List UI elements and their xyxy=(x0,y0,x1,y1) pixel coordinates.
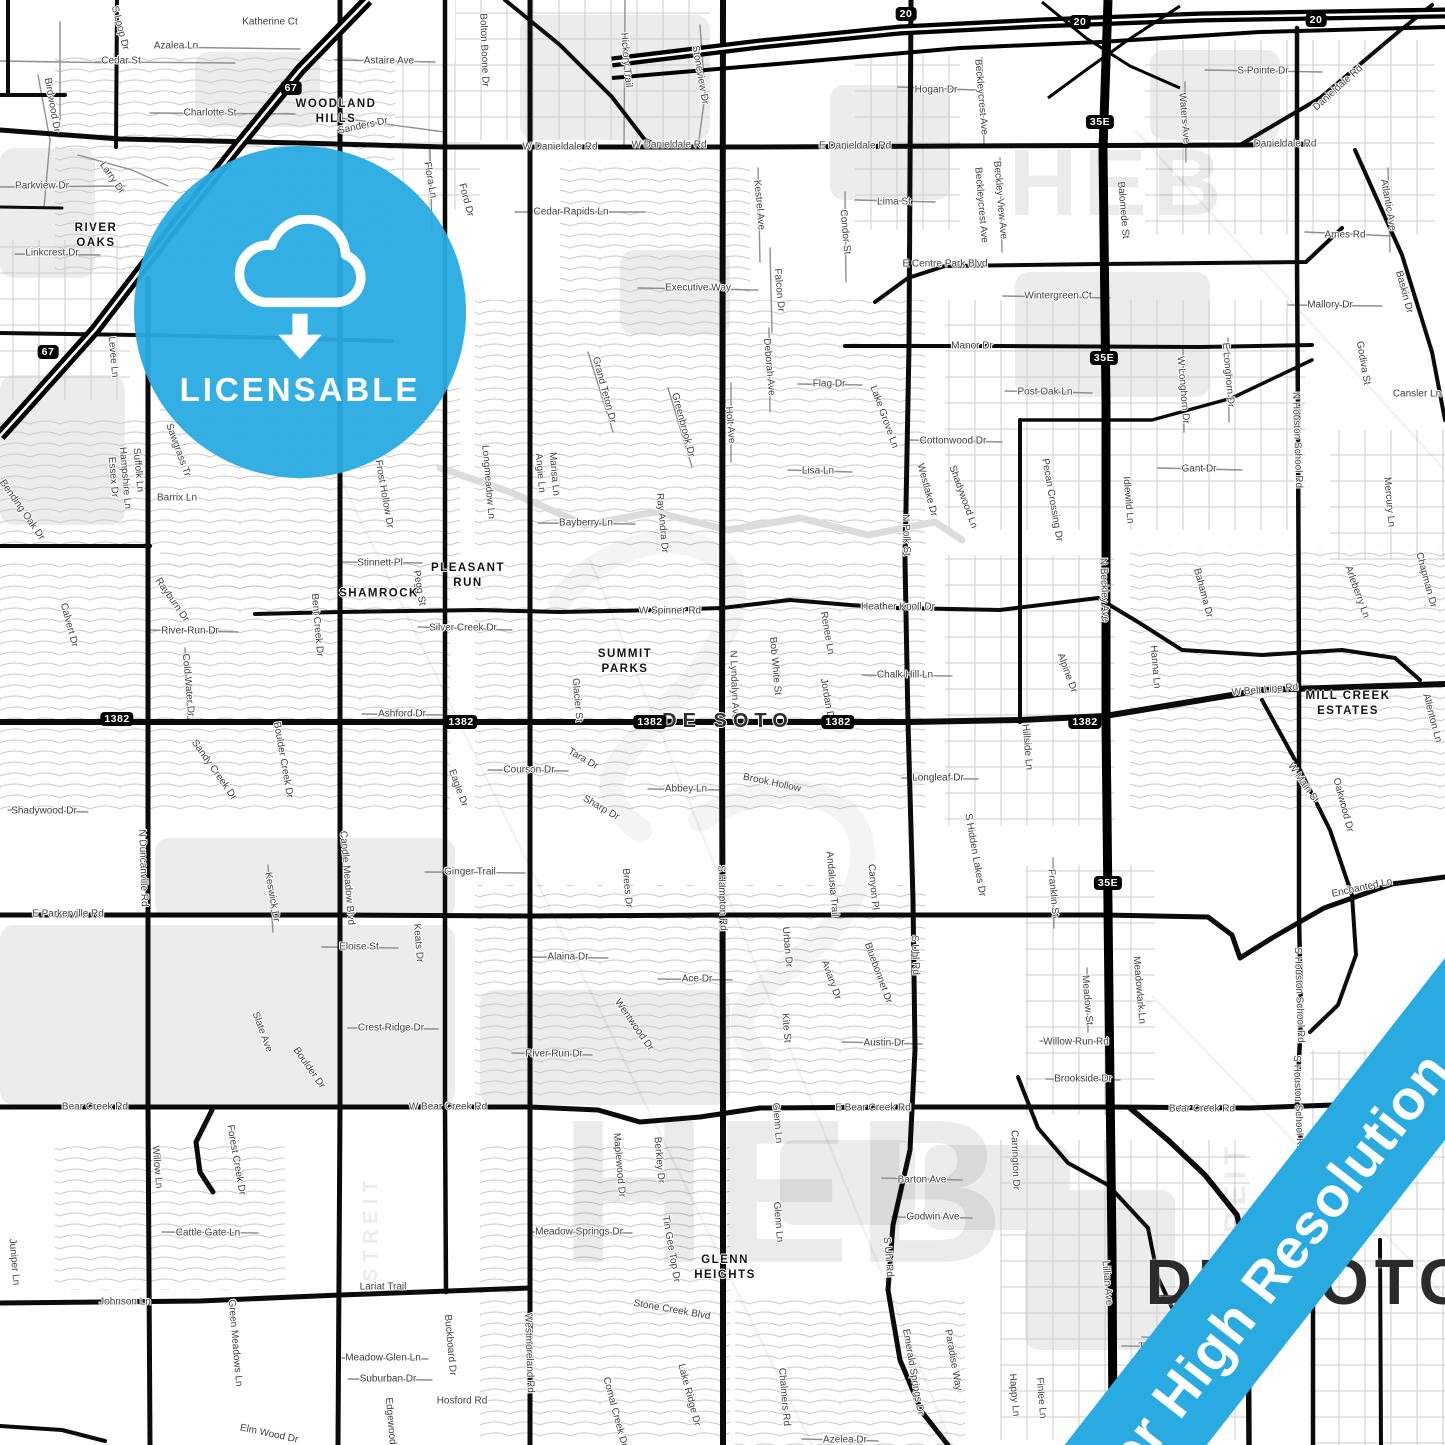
street-label: Angie Ln xyxy=(533,453,547,493)
street-label: Cattle Gate Ln xyxy=(176,1228,240,1239)
street-label: Keswick Dr xyxy=(262,871,282,922)
street-label: Hillside Ln xyxy=(1020,724,1035,771)
street-label: Allenton Ln xyxy=(1420,692,1444,743)
street-label: Shadywood Ln xyxy=(947,464,980,530)
street-label: Cottonwood Dr xyxy=(920,436,987,447)
street-label: Manor Dr xyxy=(951,341,993,352)
street-label: Lake Ridge Dr xyxy=(675,1363,702,1428)
street-label: Comal Creek Dr xyxy=(600,1376,629,1445)
street-label: Mallory Dr xyxy=(1307,300,1353,311)
city-label-desoto: DE SOTO xyxy=(662,708,794,734)
street-label: Greenbrook Dr xyxy=(669,392,697,459)
street-label: Edgewood Ln xyxy=(383,1397,399,1445)
street-label: Longleaf Dr xyxy=(912,773,964,784)
street-label: Franklin St xyxy=(1045,869,1060,918)
street-label: Birdwood Dr xyxy=(42,77,62,133)
street-label: E Danieldale Rd xyxy=(819,141,891,152)
street-label: Hosford Rd xyxy=(437,1396,488,1407)
street-label: Rayburn Dr xyxy=(153,576,191,624)
street-label: Barton Ave xyxy=(898,1175,947,1186)
city-label: GLENN HEIGHTS xyxy=(694,1253,756,1283)
street-label: Hickory Trail xyxy=(618,32,634,88)
street-label: Sandy Creek Dr xyxy=(189,738,239,803)
street-label: Ace Dr xyxy=(682,974,713,985)
street-label: Keats Dr xyxy=(411,923,425,963)
street-label: Cold Water Dr xyxy=(180,653,196,717)
street-label: Ashford Dr xyxy=(378,709,426,720)
street-label: Maplewood Dr xyxy=(611,1132,628,1197)
street-label: Holt Ave xyxy=(723,406,737,444)
street-label: Bear Creek Rd xyxy=(62,1102,128,1113)
street-label: Katherine Ct xyxy=(242,17,298,28)
street-label: Carrington Dr xyxy=(1008,1130,1021,1190)
street-label: Lillian Ave xyxy=(1100,1260,1115,1306)
street-label: Azelea Dr xyxy=(823,1435,867,1445)
street-label: Willow Run Rd xyxy=(1043,1037,1109,1048)
street-label: Chalk Hill Ln xyxy=(877,670,933,681)
street-label: Tin Gee Top Dr xyxy=(660,1215,683,1283)
street-label: Glenn Ln xyxy=(771,1201,785,1242)
highway-shield: 67 xyxy=(38,345,59,359)
street-label: Levee Ln xyxy=(106,336,121,378)
street-label: Oakwood Dr xyxy=(1330,777,1355,834)
street-label: Frost Hollow Dr xyxy=(373,459,396,529)
street-label: W Longhorn Dr xyxy=(1175,356,1192,425)
street-label: Flora Ln xyxy=(421,161,438,199)
street-label: Urban Dr xyxy=(780,926,794,967)
street-label: Baskin Dr xyxy=(1393,270,1415,315)
street-label: Heather Knoll Dr xyxy=(861,602,935,613)
street-label: Bending Oak Dr xyxy=(0,478,47,543)
street-label: Eloise St xyxy=(339,942,378,953)
street-label: Deborah Ave xyxy=(761,338,777,396)
street-label: S Loop Dr xyxy=(109,5,131,51)
street-label: Meadow Glen Ln xyxy=(345,1353,421,1364)
street-label: Falcon Dr xyxy=(772,268,787,312)
street-label: Calvert Dr xyxy=(58,602,80,648)
street-label: Meadowlark Ln xyxy=(1131,956,1148,1025)
street-label: E Parkerville Rd xyxy=(32,909,104,920)
street-label: Charlotte St xyxy=(184,108,237,119)
street-label: Grand Teton Dr xyxy=(590,356,618,425)
street-label: Bob White St xyxy=(767,636,783,695)
street-label: Larry Dr xyxy=(97,160,127,196)
street-label: Arleberry Ln xyxy=(1343,565,1372,620)
street-label: Cansler Ln xyxy=(1393,389,1441,400)
street-label: Barrix Ln xyxy=(157,493,197,504)
street-label: E Bear Creek Rd xyxy=(835,1103,911,1114)
street-label: River Run Dr xyxy=(525,1049,583,1060)
street-label: Enchanted Ln xyxy=(1331,876,1394,900)
street-label: Balomede St xyxy=(1115,181,1131,239)
street-label: Beckleycrest Ave xyxy=(972,59,990,136)
street-label: Atlantic Ave xyxy=(1378,178,1398,231)
street-label: Chalmers Rd xyxy=(776,1367,792,1426)
street-label: W Danieldale Rd xyxy=(522,142,597,153)
street-label: Chapman Dr xyxy=(1413,551,1438,609)
street-label: Elm Wood Dr xyxy=(239,1422,299,1445)
street-label: Westlake Dr xyxy=(915,462,940,517)
street-label: S Houston School Rd xyxy=(1292,947,1306,1043)
street-label: Beckleycrest Ave xyxy=(972,167,990,244)
street-label: W Belt Line Rd xyxy=(1231,682,1298,699)
city-label: PLEASANT RUN xyxy=(431,561,505,591)
street-label: Mercury Ln xyxy=(1381,477,1396,528)
street-label: Lima St xyxy=(877,197,911,208)
highway-shield: 1382 xyxy=(633,715,666,729)
street-label: Abbey Ln xyxy=(665,784,707,795)
street-label: Austin Dr xyxy=(863,1038,904,1049)
street-label: Kite St xyxy=(779,1013,793,1043)
street-label: Alaina Dr xyxy=(547,952,588,963)
street-label: S Hampton Rd xyxy=(715,865,728,931)
street-label: Hanna Ln xyxy=(1148,645,1163,689)
street-label: Boulder Dr xyxy=(291,1045,327,1090)
street-label: Suburban Dr xyxy=(360,1374,417,1385)
street-label: Wintergreen Ct xyxy=(1024,291,1091,302)
street-label: Silver Creek Dr xyxy=(429,623,497,634)
street-label: Slate Ave xyxy=(250,1010,275,1053)
street-label: Paradise Way xyxy=(942,1329,964,1392)
street-label: Flag Dr xyxy=(813,379,846,390)
licensable-badge: LICENSABLE xyxy=(134,146,466,478)
street-label: E Centre Park Blvd xyxy=(902,259,987,270)
street-label: N Beckley Ave xyxy=(1097,558,1110,623)
street-label: W Spinner Rd xyxy=(639,606,701,617)
street-label: S Uhl Rd xyxy=(881,1237,895,1278)
street-label: Ginger Trail xyxy=(444,867,496,878)
map-image: HEBHEBSTREITSTREIT S Loop DrKatherine Ct… xyxy=(0,0,1445,1445)
street-label: Brookside Dr xyxy=(1054,1074,1112,1085)
street-label: W Danieldale Rd xyxy=(631,140,706,151)
street-label: Hogan Dr xyxy=(915,85,958,96)
street-label: Canyon Pl xyxy=(866,864,881,911)
street-label: Waters Ave xyxy=(1176,92,1191,143)
street-label: Astaire Ave xyxy=(364,56,414,67)
city-label: SUMMIT PARKS xyxy=(598,647,652,677)
city-label: RIVER OAKS xyxy=(75,221,118,251)
street-label: Danieldale Rd xyxy=(1254,139,1317,150)
street-label: Willow Ln xyxy=(150,1145,165,1189)
street-label: Juniper Ln xyxy=(6,1238,21,1285)
street-label: N Duncanville Rd xyxy=(136,829,150,907)
street-label: Renee Ln xyxy=(818,611,836,656)
street-label: Gant Dr xyxy=(1181,464,1216,475)
street-label: Parkview Dr xyxy=(15,181,69,192)
street-label: Linkcrest Dr xyxy=(25,248,78,259)
street-label: Brees Dr xyxy=(620,868,634,908)
street-label: Forest Creek Dr xyxy=(224,1124,247,1196)
street-label: Finlee Ln xyxy=(1034,1377,1049,1419)
street-label: Stone Creek Blvd xyxy=(633,1298,712,1322)
street-label: Ames Rd xyxy=(1324,230,1365,241)
street-label: Lisa Ln xyxy=(802,466,834,477)
street-label: River Run Dr xyxy=(161,626,219,637)
street-label: W Main St xyxy=(1285,761,1320,805)
street-label: Berkley Dr xyxy=(651,1136,666,1183)
street-label: Lariat Trail xyxy=(360,1282,407,1293)
street-label: Longmeadow Ln xyxy=(479,445,496,520)
highway-shield: 1382 xyxy=(821,715,854,729)
city-label: MILL CREEK ESTATES xyxy=(1305,689,1390,719)
highway-shield: 20 xyxy=(1070,15,1091,29)
street-label: S Pointe Dr xyxy=(1237,66,1288,77)
street-label: Aviary Dr xyxy=(819,959,843,1001)
highway-shield: 20 xyxy=(1306,13,1327,27)
street-label: Bahama Dr xyxy=(1191,567,1215,619)
highway-shield: 35E xyxy=(1094,876,1122,890)
highway-shield: 35E xyxy=(1086,115,1114,129)
street-label: Lake Grove Ln xyxy=(868,384,901,449)
street-label: Bolton Boone Dr xyxy=(477,13,491,87)
street-label: Brook Hollow xyxy=(742,771,802,794)
street-label: Bear Creek Rd xyxy=(1169,1104,1235,1115)
street-label: Post Oak Ln xyxy=(1017,387,1072,398)
street-label: W Bear Creek Rd xyxy=(409,1102,487,1113)
street-label: S Uhl Rd xyxy=(909,935,921,975)
street-label: Danieldale Rd xyxy=(1311,63,1365,113)
street-label: Cedar Rapids Ln xyxy=(533,207,608,218)
street-label: Ford Dr xyxy=(456,182,475,218)
highway-shield: 35E xyxy=(1090,351,1118,365)
highway-shield: 20 xyxy=(896,7,917,21)
street-label: Godwin Ave xyxy=(906,1212,959,1223)
street-label: Pecan Crossing Dr xyxy=(1039,458,1064,543)
street-label: Glenn Ln xyxy=(770,1102,784,1143)
street-label: Cedar St xyxy=(101,56,140,67)
street-label: Happy Ln xyxy=(1007,1373,1022,1417)
street-label: Marisa Ln xyxy=(547,452,562,497)
street-label: Condor St xyxy=(838,209,853,255)
street-label: N Polk St xyxy=(900,514,912,556)
street-label: Tara Dr xyxy=(566,746,600,772)
city-label: SHAMROCK xyxy=(339,587,419,602)
street-label: Executive Way xyxy=(665,283,731,294)
street-label: Meadow Springs Dr xyxy=(535,1227,623,1238)
street-label: Glacier St xyxy=(570,678,585,723)
street-label: Buckboard Dr xyxy=(442,1314,458,1376)
street-label: Andalusia Trail xyxy=(824,851,841,917)
street-label: Azalea Ln xyxy=(154,41,198,52)
street-label: S Hidden Lakes Dr xyxy=(962,813,987,898)
street-label: E Longhorn Dr xyxy=(1220,342,1237,408)
street-label: Beckley View Ave xyxy=(991,160,1009,239)
street-label: Idlewild Ln xyxy=(1120,476,1135,524)
street-label: Godiva St xyxy=(1354,340,1372,385)
street-label: Courson Dr xyxy=(503,765,554,776)
street-label: Bayberry Ln xyxy=(559,518,613,529)
street-label: Eagle Dr xyxy=(446,768,470,808)
street-label: Suffolk Ln xyxy=(131,447,146,492)
street-label: Johnson Ln xyxy=(99,1297,151,1308)
highway-shield: 1382 xyxy=(1068,715,1101,729)
highway-shield: 1382 xyxy=(100,712,133,726)
city-label: WOODLAND HILLS xyxy=(296,97,377,127)
street-label: Alpine Dr xyxy=(1055,652,1079,694)
street-label: Green Meadows Ln xyxy=(226,1299,245,1387)
street-label: N Houston School Rd xyxy=(1290,392,1304,488)
street-label: Meadow St xyxy=(1079,975,1094,1026)
street-label: Shadywood Dr xyxy=(11,806,77,817)
badge-label: LICENSABLE xyxy=(180,371,421,409)
street-label: Stinnett Pl xyxy=(357,558,403,569)
street-label: Ray Andra Dr xyxy=(654,493,670,554)
street-label: Bent Creek Dr xyxy=(309,593,325,657)
street-label: S Houston School Rd xyxy=(1291,1055,1305,1151)
street-label: Wentwood Dr xyxy=(612,997,656,1053)
street-label: Stoneview Dr xyxy=(689,45,710,105)
street-label: Candle Meadow Blvd xyxy=(337,830,356,925)
street-label: Boulder Creek Dr xyxy=(271,721,295,799)
street-label: Bluebonnet Dr xyxy=(862,941,894,1005)
cloud-download-icon xyxy=(205,215,395,365)
street-label: Emerald Springs Dr xyxy=(900,1328,926,1416)
street-label: Sharp Dr xyxy=(581,793,621,823)
street-label: Kestrel Ave xyxy=(751,179,766,230)
highway-shield: 67 xyxy=(281,81,302,95)
street-label: Westmoreland Rd xyxy=(522,1313,536,1393)
highway-shield: 1382 xyxy=(444,715,477,729)
street-label: Crest Ridge Dr xyxy=(358,1023,424,1034)
